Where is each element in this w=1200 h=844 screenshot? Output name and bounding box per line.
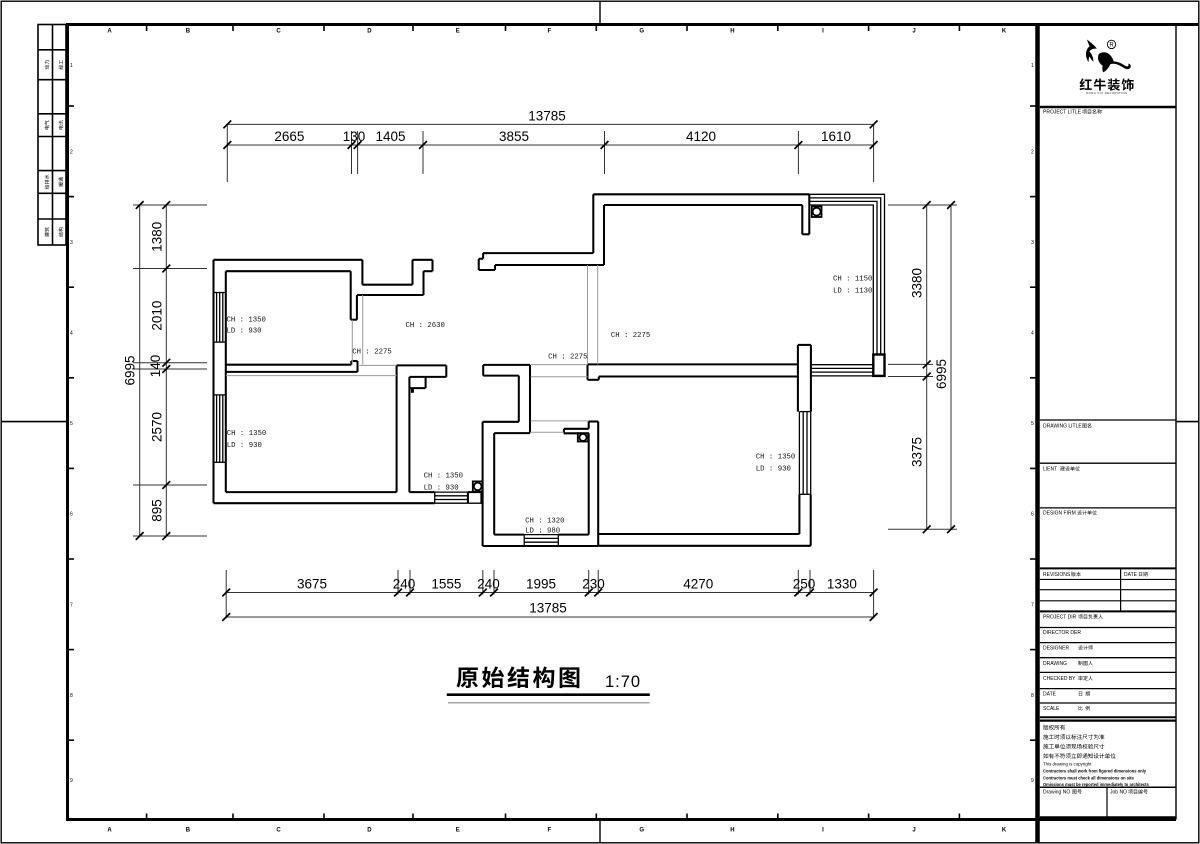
svg-text:SCALE: SCALE	[1043, 706, 1060, 712]
svg-text:E: E	[456, 828, 460, 834]
svg-text:LD : 930: LD : 930	[227, 442, 262, 450]
svg-text:3: 3	[70, 240, 73, 246]
svg-text:This drawing is copyright: This drawing is copyright	[1043, 762, 1092, 767]
svg-text:1610: 1610	[821, 129, 851, 144]
svg-text:CH : 2275: CH : 2275	[611, 332, 650, 340]
svg-text:250: 250	[793, 577, 816, 592]
svg-text:G: G	[639, 828, 644, 834]
svg-text:DRAWING: DRAWING	[1043, 661, 1067, 667]
svg-text:DATE: DATE	[1043, 692, 1057, 698]
svg-text:A: A	[107, 828, 112, 834]
svg-text:LD : 930: LD : 930	[756, 466, 791, 474]
svg-text:C: C	[276, 29, 281, 35]
svg-text:J: J	[912, 828, 915, 834]
svg-text:F: F	[547, 828, 551, 834]
svg-text:130: 130	[343, 129, 366, 144]
svg-text:1: 1	[1031, 63, 1034, 69]
svg-text:5: 5	[70, 421, 73, 427]
svg-text:CH : 2275: CH : 2275	[548, 354, 587, 362]
svg-text:CH : 1350: CH : 1350	[227, 317, 266, 325]
svg-text:7: 7	[1031, 602, 1034, 608]
svg-text:3855: 3855	[499, 129, 529, 144]
svg-text:B: B	[186, 29, 191, 35]
svg-text:CH : 1150: CH : 1150	[833, 276, 872, 284]
svg-text:6: 6	[1031, 512, 1034, 518]
svg-text:3: 3	[1031, 240, 1034, 246]
svg-text:8: 8	[70, 693, 73, 699]
svg-text:4: 4	[1031, 331, 1034, 337]
svg-text:LD : 930: LD : 930	[227, 328, 262, 336]
svg-text:1405: 1405	[375, 129, 405, 144]
svg-text:6995: 6995	[123, 355, 138, 385]
svg-text:140: 140	[148, 355, 163, 378]
svg-text:4120: 4120	[686, 129, 716, 144]
svg-text:2010: 2010	[150, 301, 165, 331]
svg-text:DESIGN FIRM: DESIGN FIRM	[1043, 511, 1076, 517]
svg-text:LD : 1130: LD : 1130	[833, 288, 872, 296]
svg-text:5: 5	[1031, 421, 1034, 427]
svg-text:1: 1	[70, 63, 73, 69]
svg-text:1555: 1555	[431, 577, 461, 592]
svg-text:REVISIONS: REVISIONS	[1043, 572, 1071, 578]
svg-text:Omissions must be reported imm: Omissions must be reported immediately t…	[1043, 782, 1150, 787]
svg-text:DATE: DATE	[1124, 572, 1138, 578]
svg-text:K: K	[1002, 828, 1007, 834]
svg-text:LIENT: LIENT	[1043, 467, 1057, 473]
svg-text:DESIGNER: DESIGNER	[1043, 646, 1070, 652]
svg-text:2: 2	[1031, 150, 1034, 156]
svg-text:D: D	[367, 29, 372, 35]
svg-text:H: H	[730, 828, 734, 834]
svg-text:LD : 930: LD : 930	[424, 485, 459, 493]
svg-text:9: 9	[1031, 778, 1034, 784]
svg-text:1330: 1330	[827, 577, 857, 592]
svg-text:Drawing NO: Drawing NO	[1043, 790, 1070, 796]
svg-text:HONG NIU DECORATION: HONG NIU DECORATION	[1086, 91, 1127, 95]
svg-text:13785: 13785	[529, 601, 567, 616]
svg-text:LD : 980: LD : 980	[525, 528, 560, 536]
svg-text:9: 9	[70, 778, 73, 784]
svg-text:Job NO: Job NO	[1110, 790, 1127, 796]
svg-text:J: J	[912, 29, 915, 35]
svg-text:PROJECT LITLE: PROJECT LITLE	[1043, 110, 1082, 116]
svg-text:CHECKED BY: CHECKED BY	[1043, 676, 1076, 682]
svg-text:CH : 2275: CH : 2275	[352, 349, 391, 357]
svg-text:7: 7	[70, 602, 73, 608]
svg-text:Contractors shall work from fi: Contractors shall work from figured dime…	[1043, 769, 1147, 774]
svg-text:6995: 6995	[934, 359, 949, 389]
svg-text:3375: 3375	[910, 437, 925, 467]
svg-text:230: 230	[582, 577, 605, 592]
svg-text:CH : 2630: CH : 2630	[406, 322, 445, 330]
svg-text:CH : 1350: CH : 1350	[424, 473, 463, 481]
svg-text:895: 895	[150, 499, 165, 522]
svg-text:G: G	[639, 29, 644, 35]
svg-text:A: A	[107, 29, 112, 35]
svg-text:DRAWING LITLE: DRAWING LITLE	[1043, 424, 1082, 430]
svg-text:240: 240	[393, 577, 416, 592]
svg-text:E: E	[456, 29, 460, 35]
svg-text:CH : 1350: CH : 1350	[756, 454, 795, 462]
svg-text:240: 240	[477, 577, 500, 592]
svg-text:PROJECT DIR: PROJECT DIR	[1043, 615, 1077, 621]
svg-text:H: H	[730, 29, 734, 35]
svg-text:4270: 4270	[683, 577, 713, 592]
svg-text:Contractors must check all dim: Contractors must check all dimensions on…	[1043, 775, 1134, 780]
svg-text:R: R	[1109, 43, 1114, 49]
svg-text:B: B	[186, 828, 191, 834]
svg-text:6: 6	[70, 512, 73, 518]
svg-text:2: 2	[70, 150, 73, 156]
svg-text:2570: 2570	[150, 412, 165, 442]
svg-text:13785: 13785	[528, 109, 566, 124]
svg-text:1380: 1380	[150, 222, 165, 252]
svg-text:3675: 3675	[297, 577, 327, 592]
svg-text:DIRECTOR DER: DIRECTOR DER	[1043, 630, 1081, 636]
svg-text:1995: 1995	[526, 577, 556, 592]
svg-text:1:70: 1:70	[605, 673, 641, 691]
svg-text:D: D	[367, 828, 372, 834]
svg-text:CH : 1350: CH : 1350	[227, 430, 266, 438]
svg-text:CH : 1320: CH : 1320	[525, 518, 564, 526]
svg-text:F: F	[547, 29, 551, 35]
svg-text:K: K	[1002, 29, 1007, 35]
svg-text:C: C	[276, 828, 281, 834]
svg-text:8: 8	[1031, 693, 1034, 699]
svg-text:3380: 3380	[910, 268, 925, 298]
svg-text:2665: 2665	[274, 129, 304, 144]
svg-text:4: 4	[70, 331, 73, 337]
